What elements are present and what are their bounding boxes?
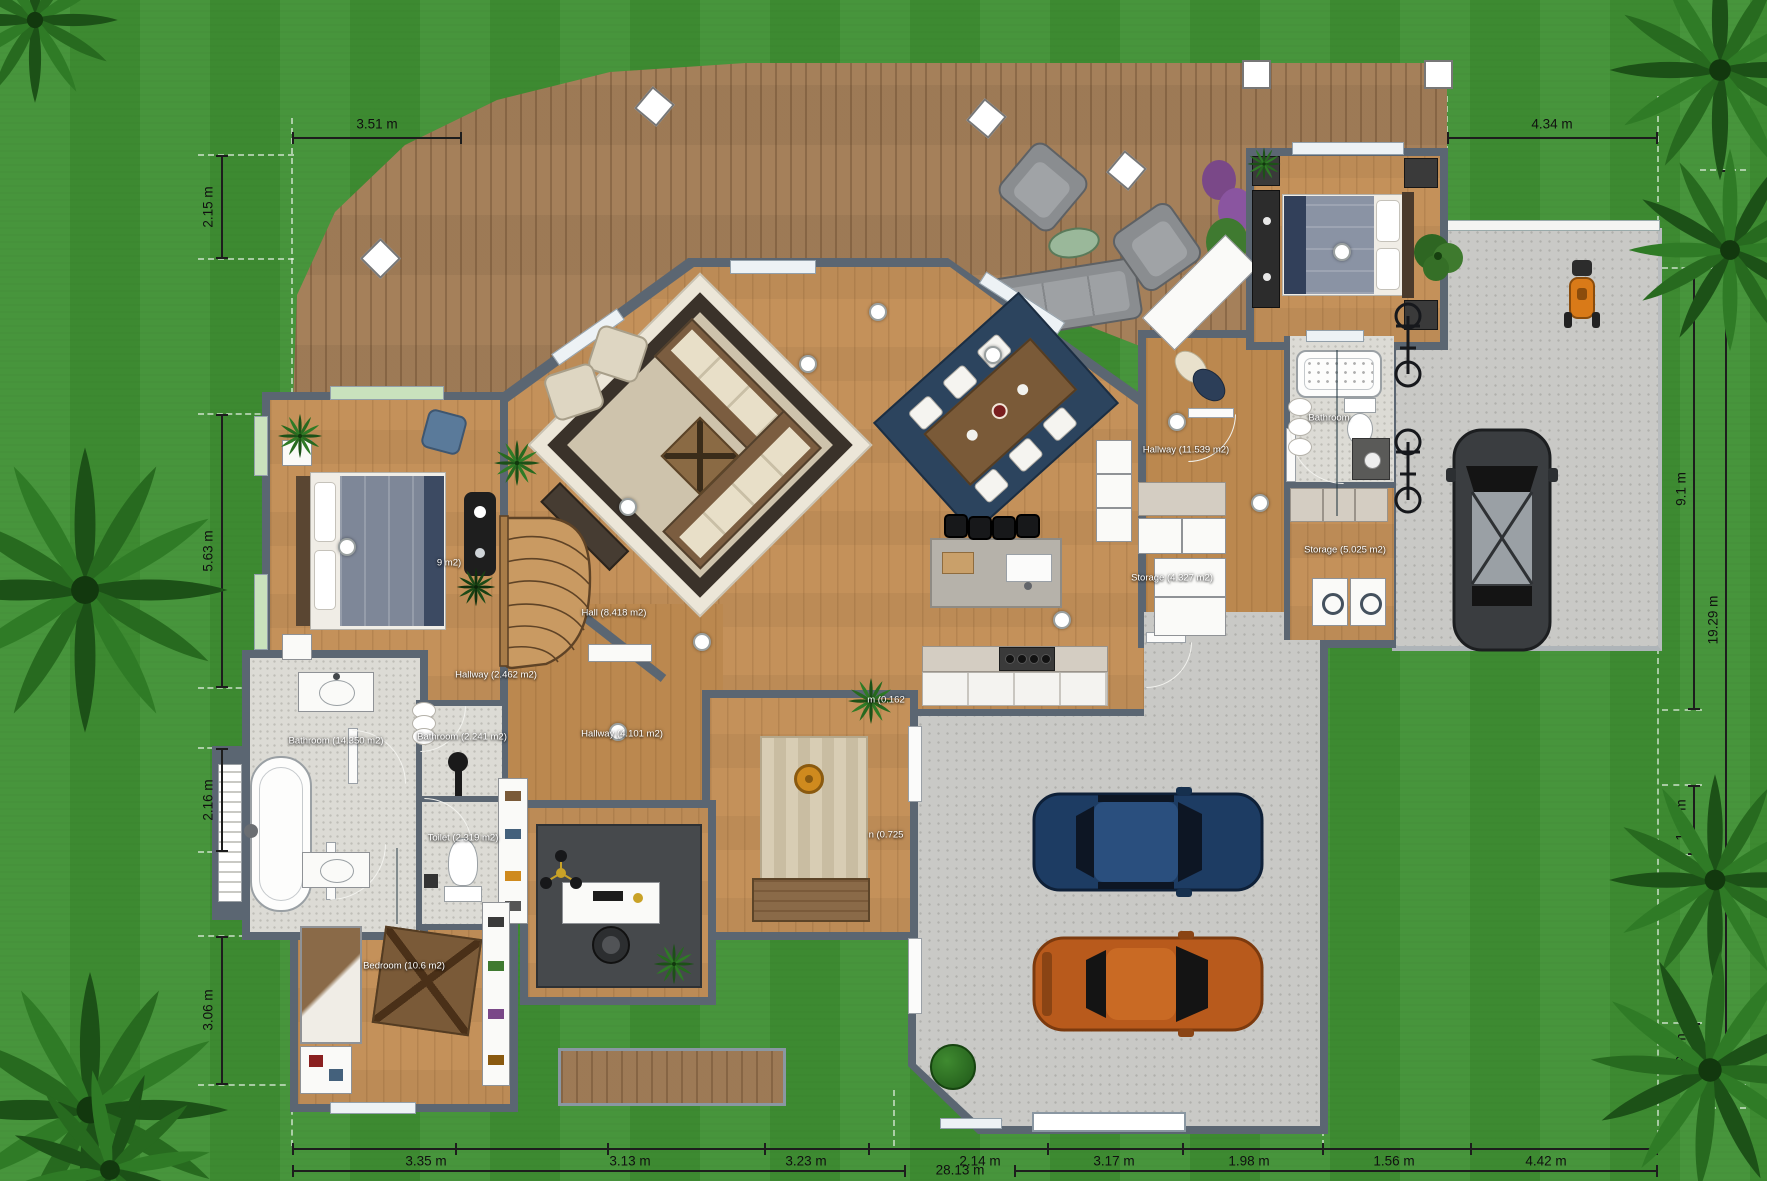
window[interactable] (730, 260, 816, 274)
shelf-item (488, 1055, 504, 1065)
dimension-label: 3.23 m (785, 1154, 826, 1169)
centerpiece (988, 400, 1011, 423)
ceiling-light[interactable] (1053, 611, 1071, 629)
tub-inner (259, 767, 303, 901)
dimension-total-line (1014, 1170, 1658, 1172)
office-chair[interactable] (592, 926, 630, 964)
deck-light-square[interactable] (1242, 60, 1271, 89)
media-tower[interactable] (464, 492, 496, 576)
dresser-item (329, 1069, 343, 1081)
desk-item (633, 893, 643, 903)
dimension-line (292, 137, 462, 139)
knob (1263, 217, 1271, 225)
plate (1015, 382, 1031, 398)
storage-cabinets[interactable] (1290, 488, 1388, 522)
ceiling-light[interactable] (869, 303, 887, 321)
toilet[interactable] (444, 838, 482, 908)
dimension-tick (1470, 1143, 1472, 1155)
tub-faucet (244, 824, 258, 838)
fern-plant (0, 0, 140, 110)
striped-rug[interactable] (760, 736, 868, 892)
vanity[interactable] (302, 852, 370, 888)
guide-line (198, 154, 294, 156)
room-label-storage-b: Storage (5.025 m2) (1304, 545, 1386, 555)
pillow (314, 550, 336, 610)
plate (964, 427, 980, 443)
window[interactable] (330, 1102, 416, 1114)
deck-light-square[interactable] (1424, 60, 1453, 89)
hall-cabinet-row[interactable] (1138, 482, 1226, 516)
room-label-closet-a: m (0.162 (867, 695, 905, 705)
vanity[interactable] (298, 672, 374, 712)
bar-stool[interactable] (944, 514, 968, 538)
stool-center (805, 775, 813, 783)
dimension-tick (455, 1143, 457, 1155)
bar-stool[interactable] (992, 516, 1016, 540)
guide-line (893, 1090, 895, 1146)
shower-glass-corner (396, 848, 398, 924)
console-table[interactable] (588, 644, 652, 662)
dimension-label: 19.29 m (1706, 596, 1721, 645)
window[interactable] (940, 1118, 1002, 1129)
dimension-label: 9.1 m (1674, 472, 1689, 506)
sink-oval (319, 680, 355, 706)
hall-cabinet-block[interactable] (1154, 558, 1226, 636)
sink-oval (320, 859, 354, 883)
bench[interactable] (752, 878, 870, 922)
speaker-dot (475, 548, 485, 558)
bicycle[interactable] (1390, 424, 1426, 520)
dimension-label: 1.56 m (1373, 1154, 1414, 1169)
bed-throw (1284, 196, 1306, 294)
shelf-item (505, 829, 521, 839)
kids-bed[interactable] (300, 926, 362, 1044)
dimension-tick (764, 1143, 766, 1155)
towel (1288, 438, 1312, 456)
room-label-bedroom-kids: Bedroom (10.6 m2) (363, 961, 445, 971)
knob (1263, 273, 1271, 281)
sink (1364, 452, 1381, 469)
window[interactable] (254, 416, 268, 476)
speaker-dot (474, 506, 486, 518)
chandelier[interactable] (538, 850, 584, 896)
pillow (314, 482, 336, 542)
dimension-label: 3.17 m (1093, 1154, 1134, 1169)
burner (1005, 654, 1015, 664)
sink-pedestal-stem (455, 770, 462, 796)
dimension-total-label: 28.13 m (936, 1163, 985, 1178)
room-label-storage-a: Storage (4.327 m2) (1131, 573, 1213, 583)
kitchen-counter-top[interactable] (922, 646, 1108, 672)
toilet-bowl (448, 838, 478, 886)
dimension-line (221, 155, 223, 259)
dimension-label: 4.42 m (1525, 1154, 1566, 1169)
dimension-tick (1322, 1143, 1324, 1155)
fern-plant (0, 420, 240, 760)
ceiling-light[interactable] (1251, 494, 1269, 512)
shrub[interactable] (1408, 226, 1470, 288)
bathtub[interactable] (1296, 350, 1382, 398)
cutting-board (942, 552, 974, 574)
washer-door (1322, 593, 1344, 615)
shower-glass (1336, 350, 1338, 516)
shelf-item (505, 791, 521, 801)
dimension-tick (1182, 1143, 1184, 1155)
round-stool-orange[interactable] (794, 764, 824, 794)
kitchen-island[interactable] (930, 538, 1062, 608)
garage-side-door[interactable] (908, 938, 922, 1014)
bed-headboard (296, 476, 310, 626)
bar-stool[interactable] (968, 516, 992, 540)
room-label-closet-b: n (0.725 (869, 830, 904, 840)
dryer-door (1360, 593, 1382, 615)
room-label-bathroom-right: Bathroom (1308, 413, 1349, 423)
potted-plant[interactable] (1246, 146, 1282, 182)
dresser[interactable] (300, 1046, 352, 1094)
dimension-label: 4.34 m (1531, 117, 1572, 132)
pillow (1376, 200, 1400, 242)
toilet-tank (444, 886, 482, 902)
towel-stack[interactable] (1288, 398, 1312, 456)
tall-cabinet-stack[interactable] (1096, 440, 1132, 542)
dimension-tick (1047, 1143, 1049, 1155)
island-faucet (1024, 582, 1032, 590)
wardrobe-dark[interactable] (1252, 190, 1280, 308)
dimension-tick (868, 1143, 870, 1155)
burner (1041, 654, 1051, 664)
window[interactable] (254, 574, 268, 650)
ceiling-light[interactable] (693, 633, 711, 651)
dryer[interactable] (1350, 578, 1386, 626)
dimension-label: 3.51 m (356, 117, 397, 132)
dimension-label: 1.98 m (1228, 1154, 1269, 1169)
potted-plant[interactable] (492, 438, 542, 488)
burner (1017, 654, 1027, 664)
ceiling-light[interactable] (1333, 243, 1351, 261)
dimension-label: 3.35 m (405, 1154, 446, 1169)
ceiling-light[interactable] (619, 498, 637, 516)
chair-seat (602, 936, 620, 954)
dresser[interactable] (1404, 158, 1438, 188)
pedestal-sink[interactable] (448, 752, 468, 772)
guide-line (198, 258, 294, 260)
dresser-item (309, 1055, 323, 1067)
stove[interactable] (999, 647, 1055, 671)
floor-plan-canvas: Hall (8.418 m2) Hallway (2.462 m2) Hallw… (0, 0, 1767, 1181)
burner (1029, 654, 1039, 664)
armchair-seat (1011, 159, 1073, 221)
bathroom-vanity[interactable] (1352, 438, 1390, 480)
window[interactable] (330, 386, 444, 400)
faucet (333, 673, 340, 680)
bar-stool[interactable] (1016, 514, 1040, 538)
dimension-line (221, 748, 223, 852)
tub-inner (1304, 358, 1374, 390)
window[interactable] (1306, 330, 1364, 342)
room-label-bathroom-master: Bathroom (14.350 m2) (288, 736, 383, 746)
dimension-label: 2.15 m (201, 186, 216, 227)
garage-side-door[interactable] (908, 726, 922, 802)
room-label-bedroom-partial: 9 m2) (437, 558, 461, 568)
dimension-line (292, 1148, 1658, 1150)
play-table[interactable] (372, 926, 483, 1037)
ceiling-light[interactable] (799, 355, 817, 373)
ceiling-light[interactable] (1168, 413, 1186, 431)
nightstand[interactable] (282, 634, 312, 660)
ceiling-light[interactable] (338, 538, 356, 556)
garage-door[interactable] (1032, 1112, 1186, 1132)
decor-branch[interactable] (455, 566, 497, 608)
spiral-staircase[interactable] (498, 512, 594, 670)
pillow (1376, 248, 1400, 290)
kitchen-counter-front[interactable] (922, 672, 1108, 706)
bicycle[interactable] (1390, 300, 1426, 392)
monitor (593, 891, 623, 901)
car-blue[interactable] (1028, 786, 1268, 898)
dimension-label: 3.13 m (609, 1154, 650, 1169)
washing-machine[interactable] (1312, 578, 1348, 626)
room-label-hallway-small: Hallway (2.462 m2) (455, 670, 537, 680)
car-gray[interactable] (1446, 424, 1558, 656)
entry-porch[interactable] (558, 1048, 786, 1106)
armchair-seat (1129, 218, 1190, 279)
room-label-bathroom-small: Bathroom (2.241 m2) (417, 732, 507, 742)
ceiling-light[interactable] (984, 346, 1002, 364)
bed-duvet-accent (424, 476, 444, 626)
dimension-label: 2.16 m (201, 779, 216, 820)
toilet-tank (1344, 398, 1376, 413)
guide-line (291, 118, 293, 394)
garage-plant[interactable] (930, 1044, 976, 1090)
dimension-total-line (292, 1170, 906, 1172)
window[interactable] (1292, 142, 1404, 155)
floor-drain (424, 874, 438, 888)
hall-cabinet-row[interactable] (1138, 518, 1226, 554)
island-sink (1006, 554, 1052, 582)
potted-plant[interactable] (276, 412, 324, 460)
shelf-item (505, 871, 521, 881)
room-label-hallway-mid: Hallway (4.101 m2) (581, 729, 663, 739)
freestanding-bathtub[interactable] (250, 756, 312, 912)
room-label-toilet: Toilet (2.319 m2) (428, 833, 499, 843)
car-orange-sports[interactable] (1028, 928, 1268, 1040)
guide-line (198, 413, 270, 415)
shelf-item (488, 961, 504, 971)
room-label-hall: Hall (8.418 m2) (582, 608, 647, 618)
shelf-item (488, 1009, 504, 1019)
toy-shelf-column[interactable] (482, 902, 510, 1086)
potted-plant[interactable] (652, 942, 696, 986)
room-label-hallway-large: Hallway (11.539 m2) (1143, 445, 1229, 455)
shelf-item (488, 917, 504, 927)
